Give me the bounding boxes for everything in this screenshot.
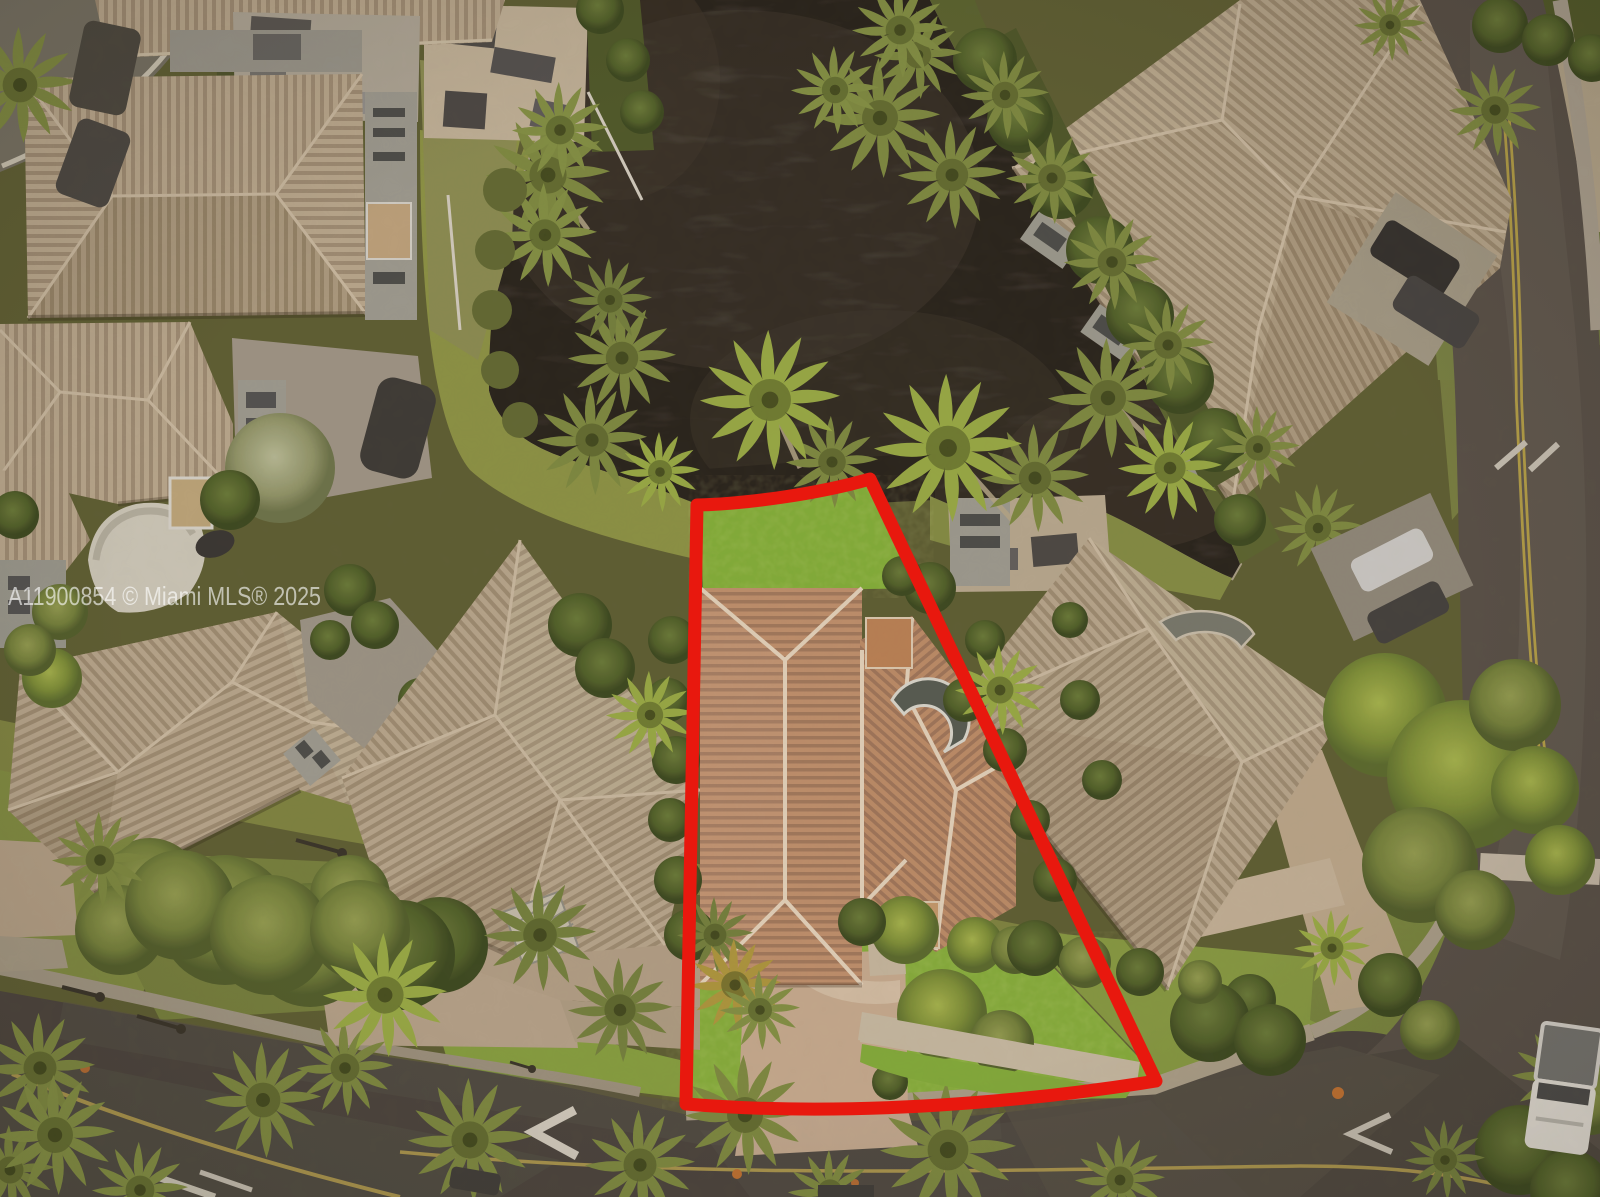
svg-text:A11900854 © Miami MLS® 2025: A11900854 © Miami MLS® 2025 xyxy=(8,581,321,611)
